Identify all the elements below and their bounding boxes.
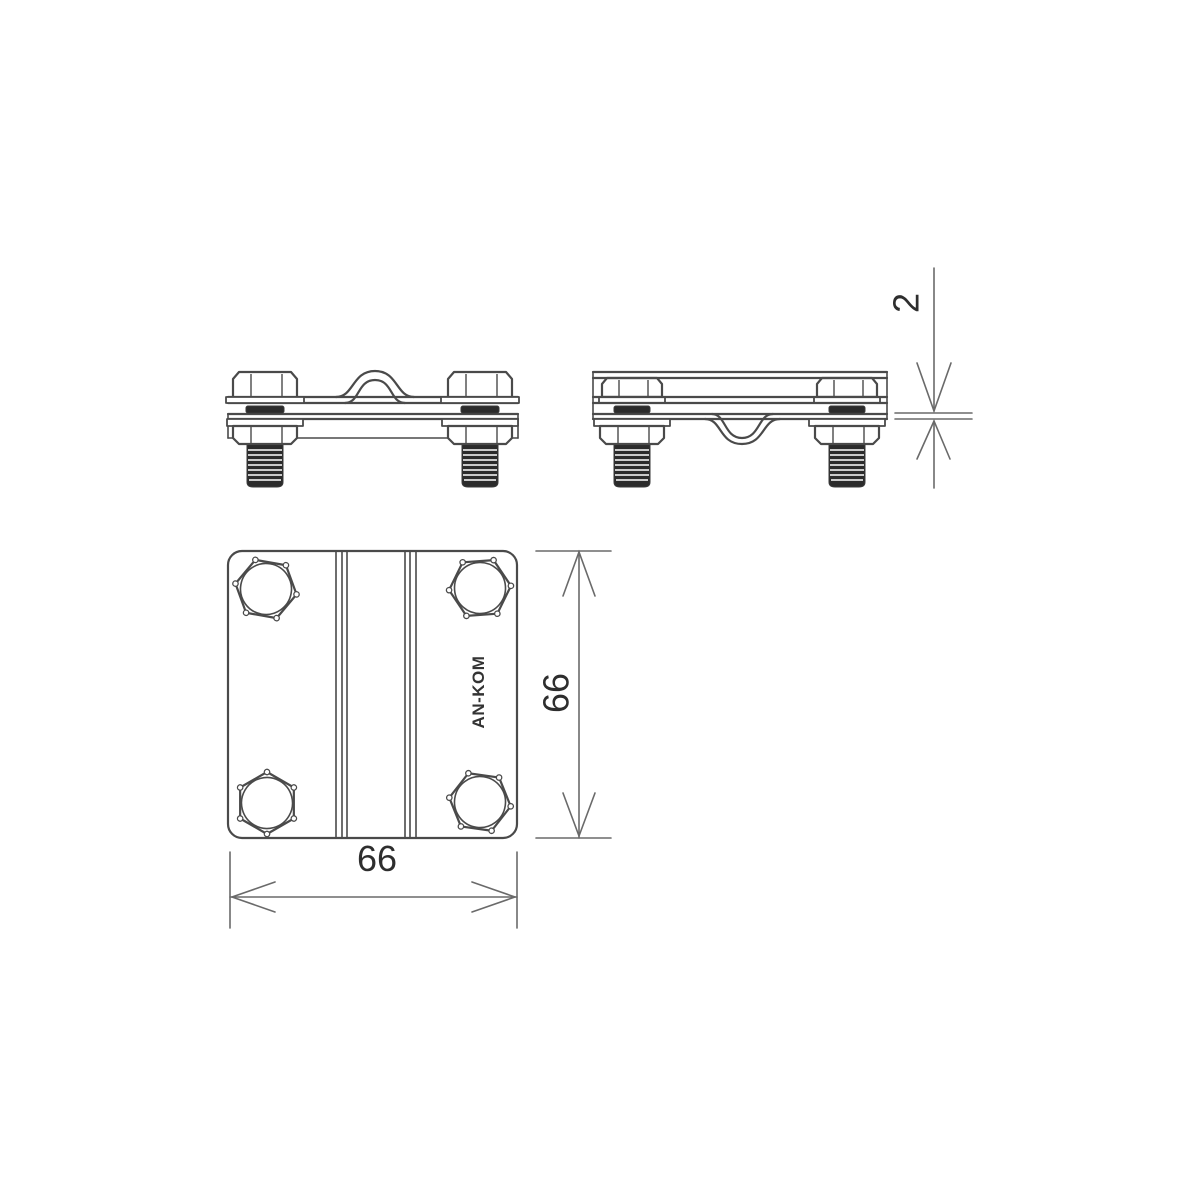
brand-label: AN-KOM — [469, 656, 488, 729]
bolt-head — [226, 372, 304, 403]
bolt-head — [814, 378, 880, 403]
spring-washer — [614, 406, 650, 413]
background — [0, 0, 1200, 1200]
bolt-head — [441, 372, 519, 403]
spring-washer — [829, 406, 865, 413]
plate-width-label: 66 — [357, 838, 397, 879]
technical-drawing-page: 2 AN-KOM 66 66 — [0, 0, 1200, 1200]
top-view: AN-KOM — [223, 551, 517, 845]
thickness-label: 2 — [886, 293, 927, 313]
spring-washer — [461, 406, 499, 413]
spring-washer — [246, 406, 284, 413]
bolt-head — [599, 378, 665, 403]
cross-connector-drawing: 2 AN-KOM 66 66 — [0, 0, 1200, 1200]
plate-height-label: 66 — [536, 673, 577, 713]
